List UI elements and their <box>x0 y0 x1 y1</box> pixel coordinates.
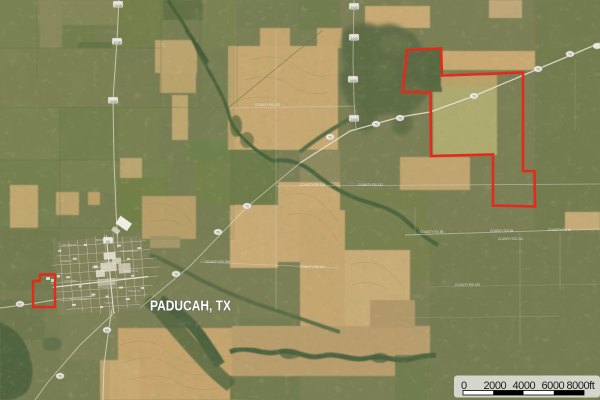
svg-text:1440: 1440 <box>350 6 358 10</box>
svg-text:70: 70 <box>328 136 332 140</box>
svg-text:COUNTY RD 245: COUNTY RD 245 <box>205 260 230 264</box>
svg-text:1038: 1038 <box>114 4 122 8</box>
svg-text:83: 83 <box>105 329 109 333</box>
svg-text:70: 70 <box>472 95 476 99</box>
svg-text:62: 62 <box>18 303 22 307</box>
svg-text:70: 70 <box>174 273 178 277</box>
svg-text:COUNTY RD 247: COUNTY RD 247 <box>300 265 325 269</box>
svg-text:1440: 1440 <box>350 37 358 41</box>
svg-text:COUNTY RD 212: COUNTY RD 212 <box>498 237 523 241</box>
svg-text:83: 83 <box>106 240 110 244</box>
svg-text:PADUCAH, TX: PADUCAH, TX <box>150 299 231 315</box>
svg-text:1038: 1038 <box>109 100 117 104</box>
svg-text:COUNTY RD 85: COUNTY RD 85 <box>420 230 444 234</box>
svg-text:EASLEY ST: EASLEY ST <box>92 265 106 269</box>
svg-text:COUNTY RD 84: COUNTY RD 84 <box>548 228 572 232</box>
svg-text:COUNTY RD 110: COUNTY RD 110 <box>255 103 280 107</box>
svg-text:WALTER ST: WALTER ST <box>62 243 77 247</box>
svg-text:COUNTY RD 132: COUNTY RD 132 <box>358 183 383 187</box>
svg-text:COUNTY RD 84: COUNTY RD 84 <box>490 229 514 233</box>
svg-text:7TH ST: 7TH ST <box>104 301 113 305</box>
svg-text:BACKUS ST: BACKUS ST <box>124 269 139 273</box>
svg-text:70: 70 <box>245 205 249 209</box>
svg-text:COUNTY RD 130: COUNTY RD 130 <box>300 183 325 187</box>
svg-text:1440: 1440 <box>350 118 358 122</box>
svg-text:1440: 1440 <box>349 79 357 83</box>
svg-text:70: 70 <box>398 117 402 121</box>
svg-text:RICHARDS ST: RICHARDS ST <box>120 249 138 253</box>
svg-text:GOODWIN: GOODWIN <box>64 279 77 283</box>
svg-text:MONTGOMERY: MONTGOMERY <box>70 297 89 301</box>
svg-text:70: 70 <box>568 53 572 57</box>
svg-text:70: 70 <box>374 123 378 127</box>
svg-text:1038: 1038 <box>113 41 121 45</box>
svg-text:GARRETT: GARRETT <box>60 259 73 263</box>
svg-text:COUNTY RD 220: COUNTY RD 220 <box>455 283 480 287</box>
svg-text:70: 70 <box>216 231 220 235</box>
svg-text:70: 70 <box>536 68 540 72</box>
svg-text:70: 70 <box>58 375 62 379</box>
svg-text:TEXAS ST: TEXAS ST <box>128 289 141 293</box>
svg-text:AMARILLO ST: AMARILLO ST <box>98 285 116 289</box>
